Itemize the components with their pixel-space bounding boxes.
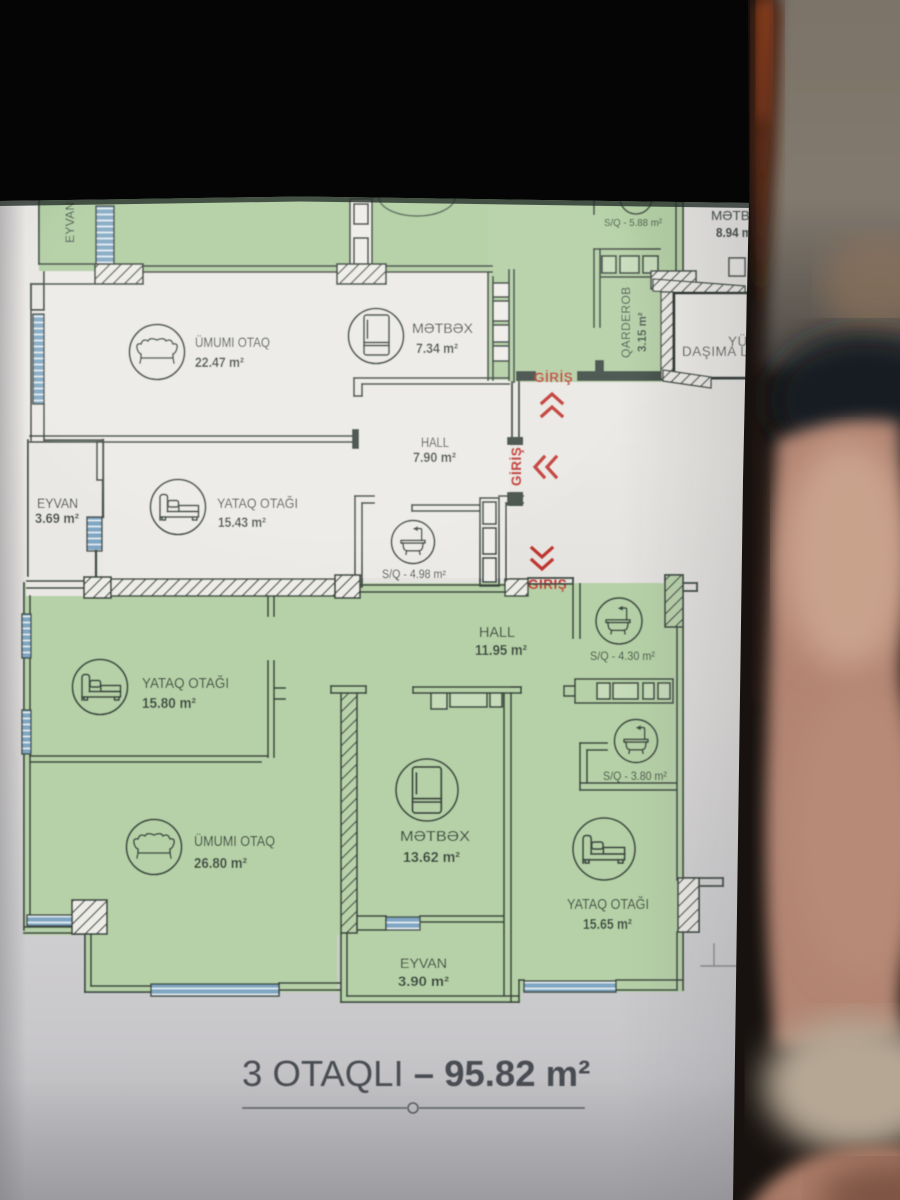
svg-text:S/Q - 4.98 m²: S/Q - 4.98 m² — [382, 569, 446, 581]
svg-text:ÜMUMI OTAQ: ÜMUMI OTAQ — [194, 832, 275, 850]
svg-text:HALL: HALL — [479, 625, 515, 641]
svg-text:26.80 m²: 26.80 m² — [194, 856, 247, 872]
svg-text:3.69 m²: 3.69 m² — [35, 511, 79, 526]
svg-text:EYVAN: EYVAN — [37, 496, 78, 511]
svg-text:15.80 m²: 15.80 m² — [142, 696, 196, 712]
svg-text:3.90 m²: 3.90 m² — [398, 974, 450, 989]
svg-text:MƏTBƏX: MƏTBƏX — [400, 829, 470, 845]
svg-text:EYVAN: EYVAN — [400, 956, 447, 971]
svg-text:13.62 m²: 13.62 m² — [403, 850, 460, 866]
svg-text:11.95 m²: 11.95 m² — [475, 643, 527, 659]
svg-text:YATAQ OTAĞI: YATAQ OTAĞI — [142, 675, 229, 692]
